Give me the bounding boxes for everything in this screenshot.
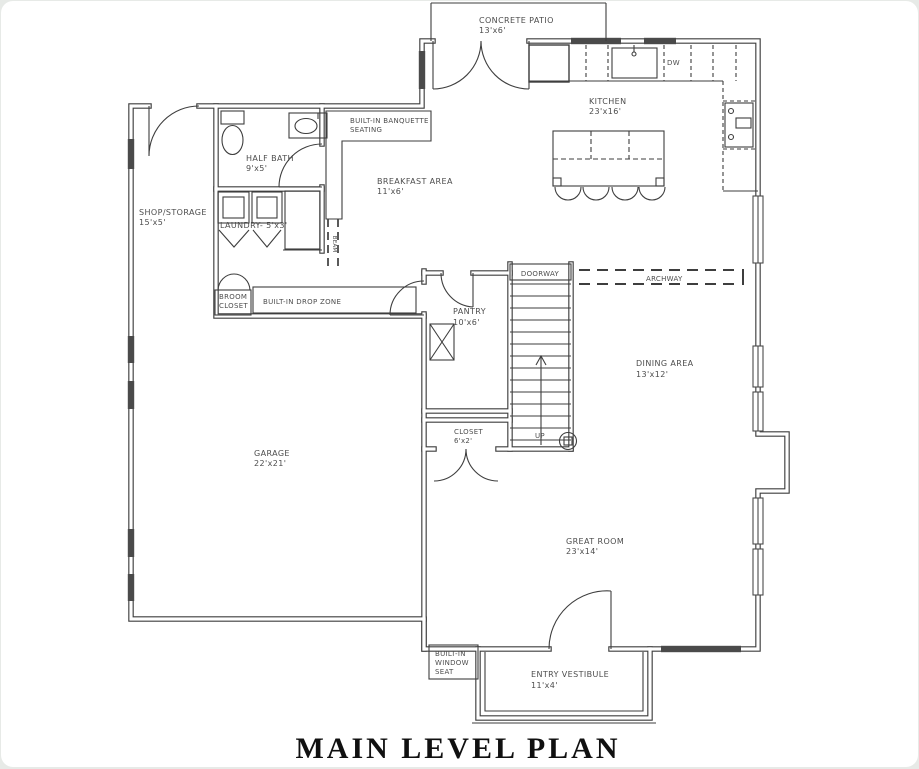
label-halfbath-name: HALF BATH	[246, 154, 294, 163]
windows-hollow	[753, 196, 763, 595]
label-broom-2: CLOSET	[219, 302, 248, 310]
label-garage-name: GARAGE	[254, 449, 290, 458]
label-halfbath-dims: 9'x5'	[246, 164, 267, 173]
windows-solid	[128, 38, 741, 652]
label-broom-1: BROOM	[219, 293, 247, 301]
label-closet-name: CLOSET	[454, 428, 483, 436]
laundry-bifold	[219, 230, 281, 247]
label-breakfast-name: BREAKFAST AREA	[377, 177, 453, 186]
laundry-cabinet	[283, 191, 322, 250]
page-title: MAIN LEVEL PLAN	[295, 732, 620, 765]
label-patio-name: CONCRETE PATIO	[479, 16, 554, 25]
label-shop-dims: 15'x5'	[139, 218, 166, 227]
label-greatroom-name: GREAT ROOM	[566, 537, 624, 546]
label-greatroom-dims: 23'x14'	[566, 547, 598, 556]
label-dining-name: DINING AREA	[636, 359, 694, 368]
closet-doors	[434, 449, 498, 481]
half-bath-door	[279, 144, 322, 187]
label-drop-zone: BUILT-IN DROP ZONE	[263, 298, 341, 306]
chase	[430, 324, 454, 360]
label-breakfast-dims: 11'x6'	[377, 187, 404, 196]
dryer	[252, 192, 282, 223]
label-windowseat-1: BUILT-IN	[435, 650, 466, 658]
label-pantry-name: PANTRY	[453, 307, 486, 316]
label-doorway: DOORWAY	[521, 270, 560, 278]
label-archway: ARCHWAY	[646, 275, 683, 283]
shop-door	[149, 106, 199, 156]
label-windowseat-3: SEAT	[435, 668, 454, 676]
stairs	[510, 284, 577, 450]
garage-door	[390, 281, 424, 315]
pantry-door	[441, 273, 473, 307]
label-up: UP	[535, 432, 545, 440]
label-vestibule-dims: 11'x4'	[531, 681, 558, 690]
label-kitchen-name: KITCHEN	[589, 97, 626, 106]
label-shop-name: SHOP/STORAGE	[139, 208, 207, 217]
label-pantry-dims: 10'x6'	[453, 318, 480, 327]
label-windowseat-2: WINDOW	[435, 659, 469, 667]
label-beam: BEAM	[331, 236, 337, 253]
broom-doors	[218, 274, 250, 290]
toilet	[221, 111, 244, 155]
washer	[218, 192, 249, 223]
kitchen-island	[553, 131, 665, 200]
vestibule-detail	[472, 652, 656, 723]
kitchen-counter-right	[723, 81, 758, 191]
label-closet-dims: 6'x2'	[454, 437, 472, 445]
label-patio-dims: 13'x6'	[479, 26, 506, 35]
floor-plan-svg: CONCRETE PATIO 13'x6' KITCHEN 23'x16' DW…	[1, 1, 919, 769]
entry-door	[549, 591, 611, 649]
labels: CONCRETE PATIO 13'x6' KITCHEN 23'x16' DW…	[139, 16, 694, 690]
plan-sheet: CONCRETE PATIO 13'x6' KITCHEN 23'x16' DW…	[1, 1, 918, 767]
label-banquette-1: BUILT-IN BANQUETTE	[350, 117, 429, 125]
label-banquette-2: SEATING	[350, 126, 382, 134]
fridge	[529, 45, 569, 82]
label-garage-dims: 22'x21'	[254, 459, 286, 468]
patio-door-arcs	[433, 41, 529, 89]
kitchen-counter-top	[529, 45, 736, 82]
walls-outer	[131, 41, 787, 718]
label-laundry: LAUNDRY- 5'x3'	[220, 221, 287, 230]
label-vestibule-name: ENTRY VESTIBULE	[531, 670, 609, 679]
island-stools	[555, 187, 665, 200]
label-dining-dims: 13'x12'	[636, 370, 668, 379]
label-kitchen-dims: 23'x16'	[589, 107, 621, 116]
label-dishwasher: DW	[667, 59, 680, 67]
